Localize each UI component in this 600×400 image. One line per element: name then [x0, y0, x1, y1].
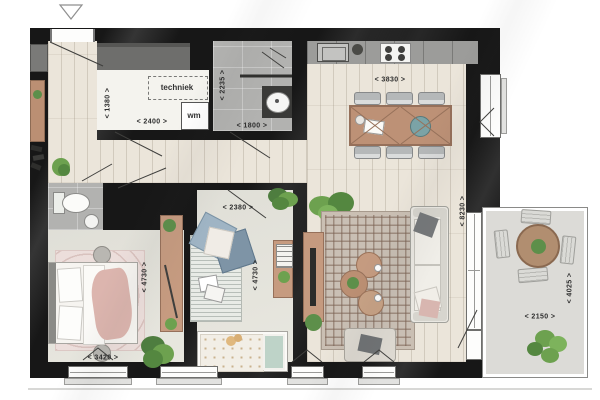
dining-chair — [354, 92, 381, 105]
toilet-bowl — [62, 193, 90, 213]
bedroom1-shelf — [160, 215, 183, 332]
balcony-door — [466, 330, 482, 360]
burner — [385, 54, 392, 61]
balcony-slider-window — [466, 212, 482, 330]
table-plate — [355, 115, 365, 125]
desk-plant — [278, 271, 290, 283]
table-book — [363, 119, 385, 136]
meter-closet — [30, 44, 48, 72]
living-window-right — [362, 366, 396, 378]
bed-headboard — [49, 263, 56, 343]
dining-chair — [386, 92, 413, 105]
cooktop — [380, 43, 411, 63]
sofa-pillow-pink — [419, 298, 441, 318]
bedroom2-palm-leaf — [272, 197, 289, 210]
bench-plant — [33, 90, 42, 99]
bedroom2-window-sill — [156, 378, 222, 385]
techniek-label: techniek — [148, 76, 206, 98]
burner — [398, 46, 405, 53]
dining-chair — [418, 146, 445, 159]
floor-plan: techniek wm — [0, 0, 600, 400]
burner — [385, 46, 392, 53]
coffee-table-plant — [347, 277, 359, 289]
front-door-opening — [50, 29, 95, 42]
dining-chair — [386, 146, 413, 159]
living-window-left — [291, 366, 324, 378]
balcony-chair — [517, 267, 548, 284]
cup — [374, 294, 382, 302]
balcony-chair — [494, 229, 511, 258]
techniek-closet — [97, 43, 190, 70]
bedroom1-window — [68, 366, 128, 378]
kitchen-window-sill — [501, 78, 507, 134]
balcony-chair — [560, 235, 577, 264]
dining-chair — [418, 92, 445, 105]
desk-ladder-shelf — [276, 244, 293, 268]
bedroom2-desk — [273, 240, 293, 298]
sofa — [410, 206, 449, 323]
bedside-mat — [93, 344, 111, 362]
bed-headboard-green — [263, 334, 285, 370]
balcony — [482, 207, 588, 378]
tv — [310, 248, 316, 306]
north-triangle-marker — [58, 3, 84, 21]
cup — [374, 264, 382, 272]
balcony-plant-leaf — [541, 348, 559, 363]
living-window-right-sill — [358, 378, 400, 385]
corridor-floor — [48, 140, 307, 183]
table-bowl — [410, 116, 431, 137]
balcony-chair — [521, 209, 552, 225]
living-window-left-sill — [287, 378, 328, 385]
entry-plant-leaf — [58, 164, 70, 176]
ground-line — [28, 388, 592, 390]
bed-pillow — [57, 305, 83, 341]
wc-sink — [84, 214, 99, 229]
teddy-bear-head — [234, 334, 242, 342]
washing-machine-label: wm — [181, 102, 207, 128]
bed-pillow — [57, 267, 83, 303]
dining-chair — [354, 146, 381, 159]
kitchen-sink — [317, 43, 349, 62]
shelf-plant — [163, 219, 176, 232]
corridor-living-opening — [293, 140, 307, 183]
kitchen-faucet — [352, 44, 363, 55]
tv-cabinet — [303, 232, 324, 322]
bedroom2-window — [160, 366, 218, 378]
bedroom1-window-sill — [64, 378, 132, 385]
shelf-plant — [165, 318, 177, 330]
burner — [398, 54, 405, 61]
balcony-table-plant — [531, 239, 546, 254]
sink-basin — [322, 47, 346, 61]
living-small-plant — [305, 314, 322, 331]
daybed-pillow — [357, 334, 382, 355]
sink-drain — [275, 99, 279, 103]
double-bed — [48, 262, 138, 344]
daybed — [344, 328, 396, 362]
kitchen-window — [480, 74, 501, 138]
